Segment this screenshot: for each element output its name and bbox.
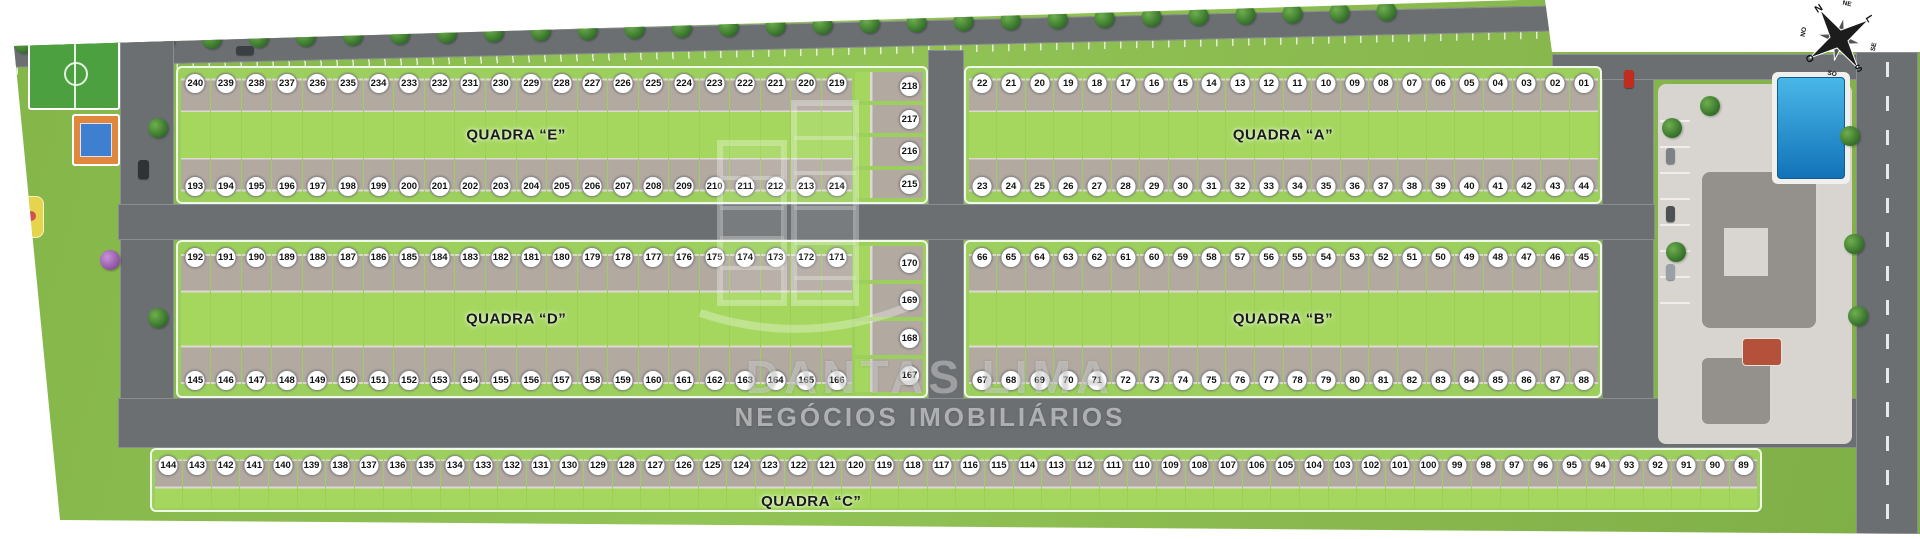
lot[interactable]: 182: [486, 244, 516, 319]
lot[interactable]: 02: [1541, 70, 1569, 135]
left-road: [120, 36, 174, 448]
lot[interactable]: 137: [355, 452, 383, 508]
lot[interactable]: 160: [639, 319, 669, 394]
lot[interactable]: 196: [272, 135, 302, 200]
lot[interactable]: 145: [181, 319, 211, 394]
lot[interactable]: 85: [1484, 319, 1512, 394]
lot[interactable]: 215: [855, 170, 923, 199]
lot[interactable]: 42: [1513, 135, 1541, 200]
lot[interactable]: 114: [1014, 452, 1042, 508]
lot-side-column: 170169168167: [854, 244, 924, 394]
lot[interactable]: 24: [997, 135, 1025, 200]
lot[interactable]: 188: [303, 244, 333, 319]
lot-number: 212: [765, 176, 786, 197]
lot[interactable]: 21: [997, 70, 1025, 135]
lot[interactable]: 05: [1455, 70, 1483, 135]
lot[interactable]: 52: [1369, 244, 1397, 319]
lot-number: 230: [490, 73, 511, 94]
lot[interactable]: 189: [272, 244, 302, 319]
lot-number: 179: [582, 247, 603, 268]
lot[interactable]: 102: [1357, 452, 1385, 508]
tree-icon: [859, 13, 879, 33]
red-car-icon: [1624, 70, 1634, 88]
lot[interactable]: 83: [1427, 319, 1455, 394]
lot[interactable]: 117: [928, 452, 956, 508]
parked-car-icon: [1666, 148, 1675, 164]
lot[interactable]: 233: [394, 70, 424, 135]
lot[interactable]: 225: [639, 70, 669, 135]
lot-number: 49: [1459, 247, 1480, 268]
lot[interactable]: 31: [1198, 135, 1226, 200]
red-roof-kiosk: [1742, 338, 1782, 366]
lot[interactable]: 11: [1284, 70, 1312, 135]
lot-number: 105: [1275, 455, 1296, 476]
lot[interactable]: 142: [212, 452, 240, 508]
lot[interactable]: 174: [730, 244, 760, 319]
lot[interactable]: 69: [1026, 319, 1054, 394]
lot[interactable]: 193: [181, 135, 211, 200]
lot[interactable]: 153: [425, 319, 455, 394]
lot[interactable]: 75: [1198, 319, 1226, 394]
lot-number: 90: [1704, 455, 1725, 476]
lot[interactable]: 184: [425, 244, 455, 319]
lot[interactable]: 105: [1271, 452, 1299, 508]
lot[interactable]: 29: [1140, 135, 1168, 200]
lot-number: 76: [1230, 370, 1251, 391]
lot[interactable]: 199: [364, 135, 394, 200]
lot[interactable]: 107: [1214, 452, 1242, 508]
lot-number: 204: [521, 176, 542, 197]
lot[interactable]: 72: [1112, 319, 1140, 394]
lot[interactable]: 162: [700, 319, 730, 394]
lot[interactable]: 208: [639, 135, 669, 200]
lot[interactable]: 206: [578, 135, 608, 200]
lot[interactable]: 129: [584, 452, 612, 508]
lot[interactable]: 229: [517, 70, 547, 135]
lot[interactable]: 01: [1570, 70, 1598, 135]
lot[interactable]: 238: [242, 70, 272, 135]
lot[interactable]: 45: [1570, 244, 1598, 319]
lot[interactable]: 219: [822, 70, 852, 135]
lot[interactable]: 94: [1587, 452, 1615, 508]
lot[interactable]: 218: [855, 72, 923, 101]
lot[interactable]: 226: [608, 70, 638, 135]
lot[interactable]: 48: [1484, 244, 1512, 319]
lot[interactable]: 87: [1541, 319, 1569, 394]
lot[interactable]: 19: [1054, 70, 1082, 135]
lot[interactable]: 152: [394, 319, 424, 394]
lot[interactable]: 78: [1284, 319, 1312, 394]
lot[interactable]: 131: [527, 452, 555, 508]
lot[interactable]: 149: [303, 319, 333, 394]
lot-number: 01: [1573, 73, 1594, 94]
lot[interactable]: 133: [470, 452, 498, 508]
lot[interactable]: 58: [1198, 244, 1226, 319]
lot[interactable]: 159: [608, 319, 638, 394]
lot[interactable]: 76: [1226, 319, 1254, 394]
lot[interactable]: 96: [1529, 452, 1557, 508]
lot[interactable]: 100: [1415, 452, 1443, 508]
lot[interactable]: 101: [1386, 452, 1414, 508]
lot[interactable]: 126: [670, 452, 698, 508]
lot[interactable]: 207: [608, 135, 638, 200]
lot[interactable]: 56: [1255, 244, 1283, 319]
tree-icon: [1376, 1, 1396, 21]
lot[interactable]: 124: [727, 452, 755, 508]
lot-number: 134: [444, 455, 465, 476]
lot[interactable]: 98: [1472, 452, 1500, 508]
sports-court: [72, 114, 120, 166]
lot[interactable]: 185: [394, 244, 424, 319]
lot[interactable]: 46: [1541, 244, 1569, 319]
lot[interactable]: 155: [486, 319, 516, 394]
lot[interactable]: 112: [1071, 452, 1099, 508]
lot[interactable]: 210: [700, 135, 730, 200]
lot[interactable]: 221: [761, 70, 791, 135]
lot[interactable]: 38: [1398, 135, 1426, 200]
lot[interactable]: 41: [1484, 135, 1512, 200]
lot[interactable]: 191: [211, 244, 241, 319]
lot-number: 45: [1573, 247, 1594, 268]
lot[interactable]: 169: [855, 284, 923, 318]
lot[interactable]: 164: [761, 319, 791, 394]
lot[interactable]: 209: [669, 135, 699, 200]
lot[interactable]: 104: [1300, 452, 1328, 508]
lot[interactable]: 139: [298, 452, 326, 508]
lot[interactable]: 36: [1341, 135, 1369, 200]
lot[interactable]: 27: [1083, 135, 1111, 200]
lot-number: 126: [673, 455, 694, 476]
lot[interactable]: 113: [1042, 452, 1070, 508]
lot[interactable]: 200: [394, 135, 424, 200]
lot[interactable]: 204: [517, 135, 547, 200]
lot[interactable]: 90: [1701, 452, 1729, 508]
lot[interactable]: 109: [1157, 452, 1185, 508]
lot[interactable]: 197: [303, 135, 333, 200]
lot[interactable]: 163: [730, 319, 760, 394]
lot-number: 100: [1418, 455, 1439, 476]
lot-number: 02: [1545, 73, 1566, 94]
lot[interactable]: 74: [1169, 319, 1197, 394]
lot[interactable]: 108: [1186, 452, 1214, 508]
lot[interactable]: 99: [1443, 452, 1471, 508]
lot[interactable]: 67: [969, 319, 997, 394]
lot[interactable]: 194: [211, 135, 241, 200]
lot[interactable]: 175: [700, 244, 730, 319]
lot-number: 187: [338, 247, 359, 268]
lot[interactable]: 187: [333, 244, 363, 319]
lot[interactable]: 06: [1427, 70, 1455, 135]
lot[interactable]: 220: [791, 70, 821, 135]
lot-number: 141: [244, 455, 265, 476]
lot-number: 138: [330, 455, 351, 476]
lot[interactable]: 167: [855, 359, 923, 393]
lot[interactable]: 30: [1169, 135, 1197, 200]
lot[interactable]: 138: [326, 452, 354, 508]
lot[interactable]: 09: [1341, 70, 1369, 135]
lot[interactable]: 103: [1329, 452, 1357, 508]
tree-icon: [953, 11, 973, 31]
lot[interactable]: 235: [333, 70, 363, 135]
lot[interactable]: 205: [547, 135, 577, 200]
lot[interactable]: 03: [1513, 70, 1541, 135]
lot[interactable]: 44: [1570, 135, 1598, 200]
lot[interactable]: 181: [517, 244, 547, 319]
lot[interactable]: 135: [412, 452, 440, 508]
lot[interactable]: 179: [578, 244, 608, 319]
lot[interactable]: 15: [1169, 70, 1197, 135]
lot-number: 73: [1144, 370, 1165, 391]
lot[interactable]: 04: [1484, 70, 1512, 135]
lot[interactable]: 236: [303, 70, 333, 135]
lot[interactable]: 80: [1341, 319, 1369, 394]
lot-number: 27: [1086, 176, 1107, 197]
lot[interactable]: 211: [730, 135, 760, 200]
lot[interactable]: 130: [555, 452, 583, 508]
lot[interactable]: 70: [1054, 319, 1082, 394]
lot[interactable]: 22: [969, 70, 997, 135]
tree-icon: [765, 15, 785, 35]
tree-icon: [201, 29, 221, 49]
lot-number: 153: [429, 370, 450, 391]
lot[interactable]: 224: [669, 70, 699, 135]
lot[interactable]: 68: [997, 319, 1025, 394]
lot[interactable]: 228: [547, 70, 577, 135]
lot[interactable]: 227: [578, 70, 608, 135]
lot[interactable]: 212: [761, 135, 791, 200]
lot[interactable]: 150: [333, 319, 363, 394]
lot-side-column: 218217216215: [854, 70, 924, 200]
lot[interactable]: 79: [1312, 319, 1340, 394]
lot[interactable]: 151: [364, 319, 394, 394]
lot[interactable]: 203: [486, 135, 516, 200]
lot[interactable]: 172: [791, 244, 821, 319]
lot[interactable]: 148: [272, 319, 302, 394]
lot-number: 106: [1246, 455, 1267, 476]
lot[interactable]: 17: [1112, 70, 1140, 135]
lot[interactable]: 116: [956, 452, 984, 508]
lot[interactable]: 77: [1255, 319, 1283, 394]
lot[interactable]: 171: [822, 244, 852, 319]
lot[interactable]: 143: [183, 452, 211, 508]
lot[interactable]: 222: [730, 70, 760, 135]
lot[interactable]: 71: [1083, 319, 1111, 394]
tree-icon: [530, 21, 550, 41]
lot-number: 157: [551, 370, 572, 391]
lot[interactable]: 92: [1644, 452, 1672, 508]
lot[interactable]: 144: [155, 452, 183, 508]
lot[interactable]: 25: [1026, 135, 1054, 200]
lot[interactable]: 39: [1427, 135, 1455, 200]
lot-number: 78: [1287, 370, 1308, 391]
lot[interactable]: 214: [822, 135, 852, 200]
lot[interactable]: 14: [1198, 70, 1226, 135]
lot[interactable]: 35: [1312, 135, 1340, 200]
lot-number: 24: [1000, 176, 1021, 197]
lot[interactable]: 140: [269, 452, 297, 508]
lot[interactable]: 43: [1541, 135, 1569, 200]
lot-number: 40: [1459, 176, 1480, 197]
lot[interactable]: 146: [211, 319, 241, 394]
lot[interactable]: 95: [1558, 452, 1586, 508]
lot[interactable]: 81: [1369, 319, 1397, 394]
lot[interactable]: 63: [1054, 244, 1082, 319]
lot[interactable]: 10: [1312, 70, 1340, 135]
lot[interactable]: 40: [1455, 135, 1483, 200]
lot[interactable]: 88: [1570, 319, 1598, 394]
lot[interactable]: 158: [578, 319, 608, 394]
lot[interactable]: 201: [425, 135, 455, 200]
lot[interactable]: 231: [455, 70, 485, 135]
lot[interactable]: 51: [1398, 244, 1426, 319]
lot[interactable]: 61: [1112, 244, 1140, 319]
lot[interactable]: 97: [1501, 452, 1529, 508]
lot[interactable]: 176: [669, 244, 699, 319]
lot[interactable]: 73: [1140, 319, 1168, 394]
lot[interactable]: 180: [547, 244, 577, 319]
lot[interactable]: 47: [1513, 244, 1541, 319]
lot-number: 152: [399, 370, 420, 391]
lot[interactable]: 128: [613, 452, 641, 508]
lot[interactable]: 91: [1672, 452, 1700, 508]
lot[interactable]: 213: [791, 135, 821, 200]
lot[interactable]: 134: [441, 452, 469, 508]
lot[interactable]: 223: [700, 70, 730, 135]
lot-number: 130: [559, 455, 580, 476]
lot[interactable]: 50: [1427, 244, 1455, 319]
lot[interactable]: 230: [486, 70, 516, 135]
lot[interactable]: 65: [997, 244, 1025, 319]
lot[interactable]: 127: [641, 452, 669, 508]
lot[interactable]: 156: [517, 319, 547, 394]
lot-number: 123: [759, 455, 780, 476]
lot[interactable]: 86: [1513, 319, 1541, 394]
lot[interactable]: 157: [547, 319, 577, 394]
lot[interactable]: 54: [1312, 244, 1340, 319]
lot-number: 33: [1258, 176, 1279, 197]
lot[interactable]: 66: [969, 244, 997, 319]
lot-number: 39: [1430, 176, 1451, 197]
tree-icon: [389, 24, 409, 44]
lot-number: 86: [1516, 370, 1537, 391]
lot[interactable]: 237: [272, 70, 302, 135]
lot-number: 177: [643, 247, 664, 268]
lot-number: 158: [582, 370, 603, 391]
lot[interactable]: 154: [455, 319, 485, 394]
lot[interactable]: 170: [855, 246, 923, 280]
lot[interactable]: 82: [1398, 319, 1426, 394]
lot[interactable]: 234: [364, 70, 394, 135]
lot[interactable]: 26: [1054, 135, 1082, 200]
lot[interactable]: 89: [1730, 452, 1758, 508]
lot[interactable]: 115: [985, 452, 1013, 508]
lot[interactable]: 34: [1284, 135, 1312, 200]
lot[interactable]: 28: [1112, 135, 1140, 200]
lot[interactable]: 20: [1026, 70, 1054, 135]
lot[interactable]: 177: [639, 244, 669, 319]
lot[interactable]: 217: [855, 105, 923, 134]
lot[interactable]: 110: [1128, 452, 1156, 508]
lot[interactable]: 165: [791, 319, 821, 394]
lot-number: 22: [972, 73, 993, 94]
lot[interactable]: 161: [669, 319, 699, 394]
lot[interactable]: 166: [822, 319, 852, 394]
lot[interactable]: 141: [240, 452, 268, 508]
lot[interactable]: 33: [1255, 135, 1283, 200]
lot[interactable]: 18: [1083, 70, 1111, 135]
lot-number: 147: [246, 370, 267, 391]
lot-number: 199: [368, 176, 389, 197]
lot[interactable]: 93: [1615, 452, 1643, 508]
lot[interactable]: 136: [384, 452, 412, 508]
lot[interactable]: 125: [699, 452, 727, 508]
lot-number: 67: [972, 370, 993, 391]
lot-number: 16: [1144, 73, 1165, 94]
lot[interactable]: 178: [608, 244, 638, 319]
lot[interactable]: 55: [1284, 244, 1312, 319]
lot[interactable]: 195: [242, 135, 272, 200]
lot[interactable]: 173: [761, 244, 791, 319]
lot[interactable]: 192: [181, 244, 211, 319]
lot[interactable]: 111: [1100, 452, 1128, 508]
lot[interactable]: 32: [1226, 135, 1254, 200]
lot[interactable]: 183: [455, 244, 485, 319]
lot[interactable]: 12: [1255, 70, 1283, 135]
lot[interactable]: 37: [1369, 135, 1397, 200]
lot[interactable]: 53: [1341, 244, 1369, 319]
lot[interactable]: 49: [1455, 244, 1483, 319]
lot[interactable]: 60: [1140, 244, 1168, 319]
lot[interactable]: 23: [969, 135, 997, 200]
lot[interactable]: 106: [1243, 452, 1271, 508]
playground: [16, 196, 44, 238]
lot[interactable]: 240: [181, 70, 211, 135]
lot-number: 133: [473, 455, 494, 476]
lot-number: 238: [246, 73, 267, 94]
lot[interactable]: 118: [899, 452, 927, 508]
lot-number: 41: [1487, 176, 1508, 197]
lot[interactable]: 232: [425, 70, 455, 135]
lot[interactable]: 07: [1398, 70, 1426, 135]
lot-number: 54: [1316, 247, 1337, 268]
lot[interactable]: 216: [855, 137, 923, 166]
lot-number: 209: [674, 176, 695, 197]
lot[interactable]: 186: [364, 244, 394, 319]
lot[interactable]: 13: [1226, 70, 1254, 135]
lot[interactable]: 57: [1226, 244, 1254, 319]
lot-number: 18: [1086, 73, 1107, 94]
lot-number: 156: [521, 370, 542, 391]
soccer-field: [28, 34, 120, 110]
lot[interactable]: 190: [242, 244, 272, 319]
lot[interactable]: 168: [855, 321, 923, 355]
lot[interactable]: 84: [1455, 319, 1483, 394]
lot[interactable]: 59: [1169, 244, 1197, 319]
lot[interactable]: 119: [871, 452, 899, 508]
lot[interactable]: 147: [242, 319, 272, 394]
lot[interactable]: 198: [333, 135, 363, 200]
lot[interactable]: 62: [1083, 244, 1111, 319]
lot[interactable]: 16: [1140, 70, 1168, 135]
middle-horizontal-road: [118, 204, 1655, 240]
lot[interactable]: 08: [1369, 70, 1397, 135]
lot[interactable]: 132: [498, 452, 526, 508]
lot-number: 58: [1201, 247, 1222, 268]
lot[interactable]: 202: [455, 135, 485, 200]
lot[interactable]: 64: [1026, 244, 1054, 319]
lot[interactable]: 239: [211, 70, 241, 135]
tree-icon: [1700, 96, 1720, 116]
